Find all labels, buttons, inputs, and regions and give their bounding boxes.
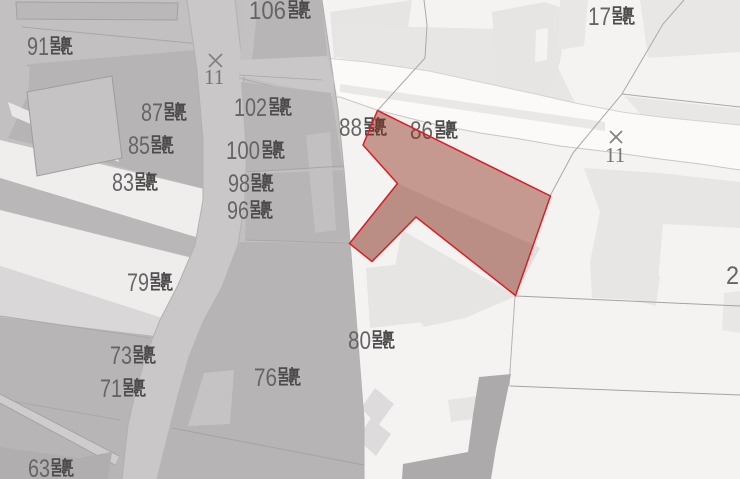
svg-text:11: 11 bbox=[204, 65, 224, 89]
svg-text:73: 73 bbox=[110, 342, 132, 370]
svg-text:80: 80 bbox=[348, 327, 371, 355]
svg-text:100: 100 bbox=[226, 137, 260, 165]
svg-text:85: 85 bbox=[128, 132, 150, 160]
svg-text:76: 76 bbox=[254, 364, 277, 392]
svg-text:11: 11 bbox=[605, 143, 625, 167]
svg-text:87: 87 bbox=[141, 99, 163, 127]
svg-text:63: 63 bbox=[28, 455, 50, 479]
svg-text:17: 17 bbox=[588, 3, 611, 31]
svg-text:91: 91 bbox=[27, 33, 49, 61]
svg-text:83: 83 bbox=[112, 169, 134, 197]
svg-text:2: 2 bbox=[726, 262, 739, 290]
svg-text:71: 71 bbox=[100, 375, 122, 403]
svg-text:96: 96 bbox=[227, 197, 249, 225]
svg-text:98: 98 bbox=[228, 170, 250, 198]
svg-text:106: 106 bbox=[249, 0, 286, 25]
svg-text:88: 88 bbox=[339, 114, 362, 142]
svg-text:102: 102 bbox=[234, 94, 267, 122]
svg-text:79: 79 bbox=[127, 269, 149, 297]
